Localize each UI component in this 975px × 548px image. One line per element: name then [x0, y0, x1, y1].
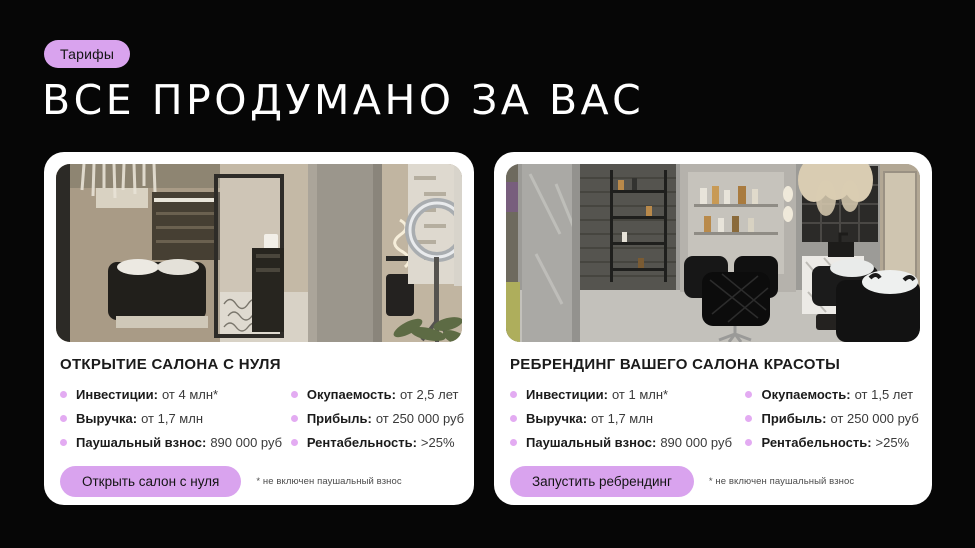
salon-photo-open	[56, 164, 462, 342]
salon-photo-rebranding-illustration	[506, 164, 920, 342]
feature-value: от 250 000 руб	[830, 411, 918, 426]
feature-value: от 250 000 руб	[376, 411, 464, 426]
feature-label: Инвестиции:	[76, 387, 158, 402]
feature-value: >25%	[876, 435, 910, 450]
open-salon-button[interactable]: Открыть салон с нуля	[60, 466, 241, 497]
feature-label: Рентабельность:	[307, 435, 417, 450]
bullet-dot-icon	[291, 391, 298, 398]
feature-item: Рентабельность: >25%	[291, 430, 458, 454]
bullet-dot-icon	[745, 415, 752, 422]
features-column-left: Инвестиции: от 1 млн* Выручка: от 1,7 мл…	[510, 382, 745, 454]
feature-item: Прибыль: от 250 000 руб	[291, 406, 458, 430]
fee-footnote: * не включен паушальный взнос	[256, 476, 401, 487]
features-list: Инвестиции: от 4 млн* Выручка: от 1,7 мл…	[60, 382, 458, 454]
section-badge: Тарифы	[44, 40, 130, 68]
feature-label: Выручка:	[76, 411, 137, 426]
bullet-dot-icon	[291, 415, 298, 422]
feature-label: Окупаемость:	[307, 387, 396, 402]
feature-value: от 1,7 млн	[141, 411, 203, 426]
cta-row: Открыть салон с нуля * не включен паушал…	[60, 466, 458, 497]
feature-item: Рентабельность: >25%	[745, 430, 916, 454]
bullet-dot-icon	[510, 391, 517, 398]
feature-label: Паушальный взнос:	[76, 435, 206, 450]
bullet-dot-icon	[510, 439, 517, 446]
feature-item: Выручка: от 1,7 млн	[60, 406, 291, 430]
salon-photo-open-illustration	[56, 164, 462, 342]
feature-item: Выручка: от 1,7 млн	[510, 406, 745, 430]
cta-row: Запустить ребрендинг * не включен паушал…	[510, 466, 916, 497]
feature-value: 890 000 руб	[210, 435, 282, 450]
bullet-dot-icon	[60, 439, 67, 446]
feature-item: Паушальный взнос: 890 000 руб	[60, 430, 291, 454]
feature-label: Выручка:	[526, 411, 587, 426]
feature-label: Паушальный взнос:	[526, 435, 656, 450]
features-list: Инвестиции: от 1 млн* Выручка: от 1,7 мл…	[510, 382, 916, 454]
feature-label: Прибыль:	[761, 411, 826, 426]
page-title: ВСЕ ПРОДУМАНО ЗА ВАС	[42, 76, 644, 124]
bullet-dot-icon	[60, 391, 67, 398]
bullet-dot-icon	[291, 439, 298, 446]
bullet-dot-icon	[745, 439, 752, 446]
fee-footnote: * не включен паушальный взнос	[709, 476, 854, 487]
bullet-dot-icon	[745, 391, 752, 398]
feature-value: от 1,7 млн	[591, 411, 653, 426]
feature-value: от 1,5 лет	[855, 387, 914, 402]
card-title: РЕБРЕНДИНГ ВАШЕГО САЛОНА КРАСОТЫ	[510, 356, 916, 373]
salon-photo-rebranding	[506, 164, 920, 342]
features-column-right: Окупаемость: от 1,5 лет Прибыль: от 250 …	[745, 382, 916, 454]
feature-item: Инвестиции: от 1 млн*	[510, 382, 745, 406]
tariffs-section: Тарифы ВСЕ ПРОДУМАНО ЗА ВАС	[0, 0, 975, 548]
pricing-card-open-salon: ОТКРЫТИЕ САЛОНА С НУЛЯ Инвестиции: от 4 …	[44, 152, 474, 505]
feature-value: от 4 млн*	[162, 387, 218, 402]
feature-value: от 2,5 лет	[400, 387, 459, 402]
feature-label: Рентабельность:	[761, 435, 871, 450]
bullet-dot-icon	[510, 415, 517, 422]
feature-item: Инвестиции: от 4 млн*	[60, 382, 291, 406]
features-column-left: Инвестиции: от 4 млн* Выручка: от 1,7 мл…	[60, 382, 291, 454]
feature-label: Окупаемость:	[761, 387, 850, 402]
features-column-right: Окупаемость: от 2,5 лет Прибыль: от 250 …	[291, 382, 458, 454]
feature-item: Прибыль: от 250 000 руб	[745, 406, 916, 430]
pricing-card-rebranding: РЕБРЕНДИНГ ВАШЕГО САЛОНА КРАСОТЫ Инвести…	[494, 152, 932, 505]
bullet-dot-icon	[60, 415, 67, 422]
pricing-cards: ОТКРЫТИЕ САЛОНА С НУЛЯ Инвестиции: от 4 …	[44, 152, 932, 505]
feature-value: >25%	[421, 435, 455, 450]
feature-label: Прибыль:	[307, 411, 372, 426]
card-title: ОТКРЫТИЕ САЛОНА С НУЛЯ	[60, 356, 458, 373]
feature-item: Окупаемость: от 1,5 лет	[745, 382, 916, 406]
feature-item: Паушальный взнос: 890 000 руб	[510, 430, 745, 454]
feature-label: Инвестиции:	[526, 387, 608, 402]
feature-value: 890 000 руб	[660, 435, 732, 450]
feature-value: от 1 млн*	[612, 387, 668, 402]
feature-item: Окупаемость: от 2,5 лет	[291, 382, 458, 406]
start-rebranding-button[interactable]: Запустить ребрендинг	[510, 466, 694, 497]
